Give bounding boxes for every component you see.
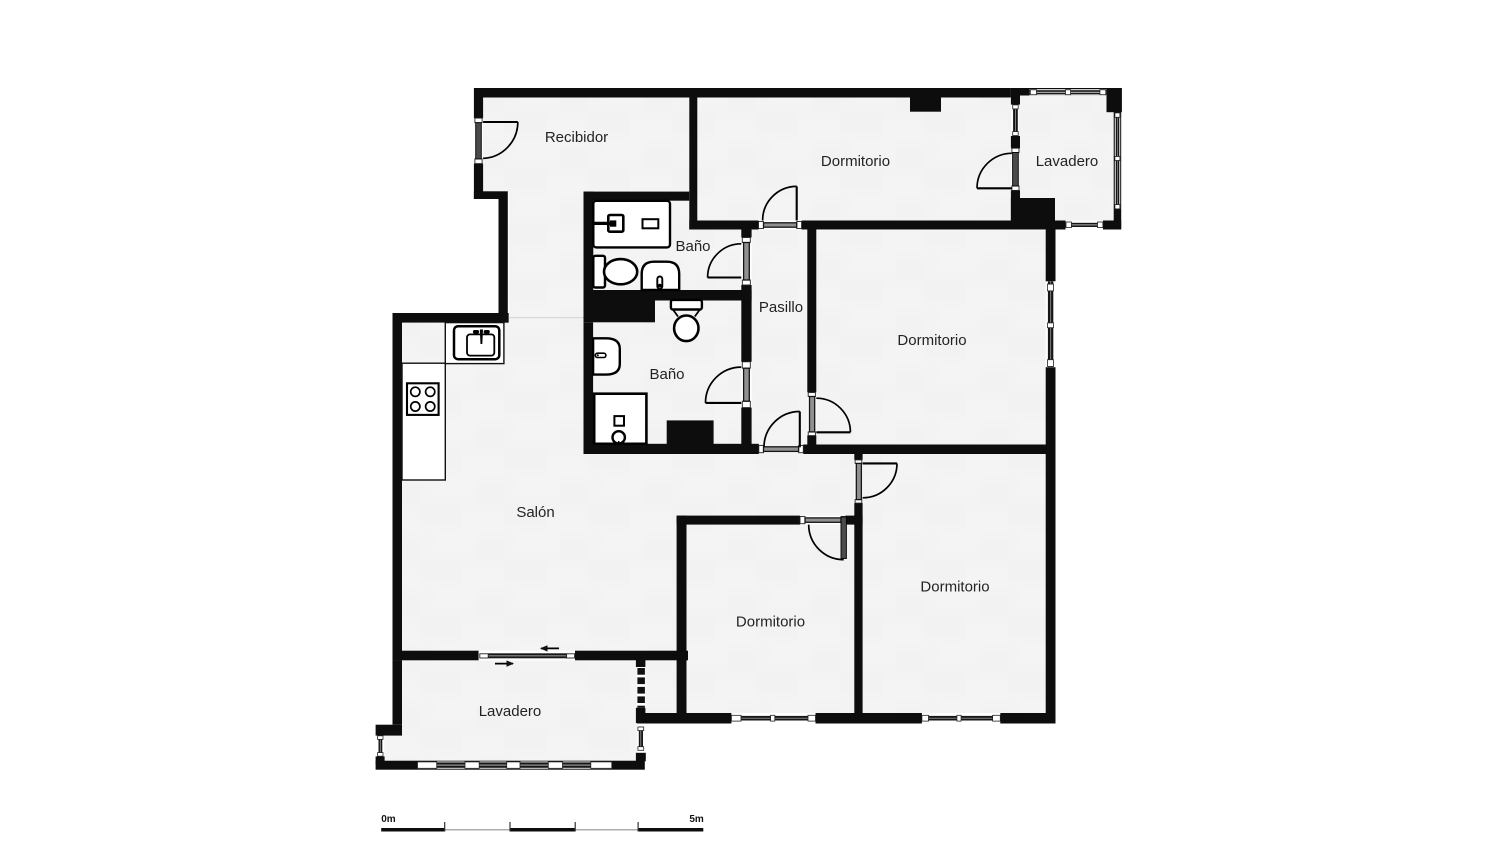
svg-text:Dormitorio: Dormitorio bbox=[897, 332, 966, 349]
svg-text:Baño: Baño bbox=[675, 238, 710, 255]
svg-text:0m: 0m bbox=[381, 814, 396, 825]
svg-text:Dormitorio: Dormitorio bbox=[821, 153, 890, 170]
svg-text:Dormitorio: Dormitorio bbox=[920, 579, 989, 596]
svg-text:Dormitorio: Dormitorio bbox=[736, 614, 805, 631]
svg-text:Baño: Baño bbox=[649, 366, 684, 383]
svg-text:Lavadero: Lavadero bbox=[1036, 153, 1099, 170]
svg-text:Recibidor: Recibidor bbox=[545, 129, 608, 146]
svg-text:5m: 5m bbox=[689, 814, 704, 825]
svg-text:Pasillo: Pasillo bbox=[759, 299, 803, 316]
svg-text:Lavadero: Lavadero bbox=[479, 703, 542, 720]
svg-text:Salón: Salón bbox=[516, 504, 554, 521]
